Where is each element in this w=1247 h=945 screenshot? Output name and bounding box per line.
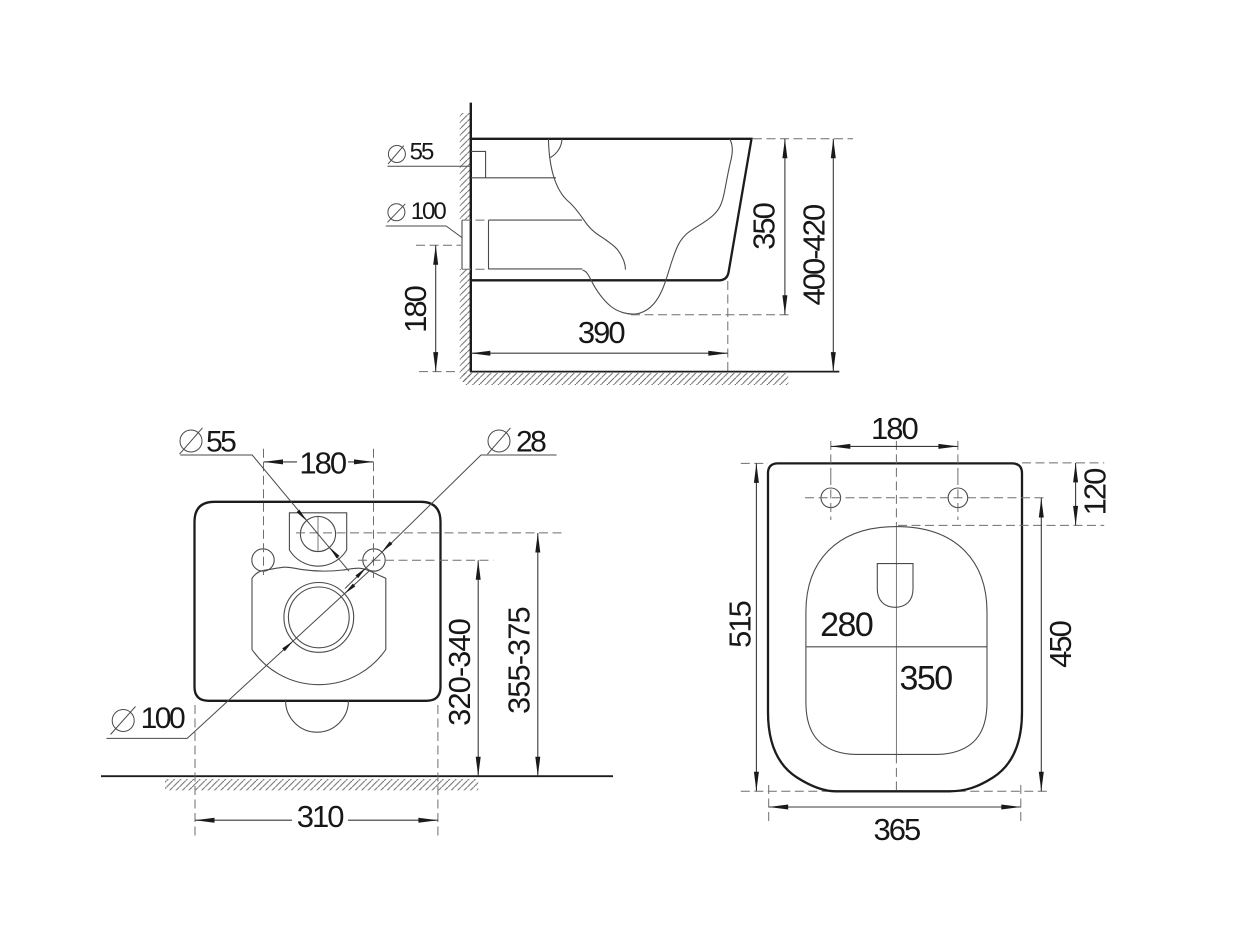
- svg-text:400-420: 400-420: [797, 204, 832, 306]
- svg-text:280: 280: [820, 606, 873, 644]
- svg-text:320-340: 320-340: [442, 618, 477, 726]
- svg-text:100: 100: [411, 198, 447, 225]
- svg-text:350: 350: [899, 660, 952, 698]
- svg-text:120: 120: [1078, 468, 1113, 515]
- svg-text:515: 515: [723, 601, 758, 647]
- svg-text:390: 390: [578, 315, 625, 350]
- svg-text:55: 55: [206, 426, 236, 459]
- svg-text:355-375: 355-375: [501, 607, 536, 714]
- svg-text:55: 55: [410, 139, 434, 166]
- svg-text:180: 180: [871, 411, 918, 446]
- svg-text:28: 28: [516, 426, 546, 459]
- svg-text:180: 180: [299, 446, 346, 481]
- svg-text:365: 365: [874, 812, 920, 847]
- svg-text:450: 450: [1043, 620, 1078, 667]
- svg-text:350: 350: [747, 202, 782, 249]
- svg-text:180: 180: [398, 285, 433, 332]
- svg-text:100: 100: [141, 702, 185, 735]
- svg-text:310: 310: [297, 799, 344, 834]
